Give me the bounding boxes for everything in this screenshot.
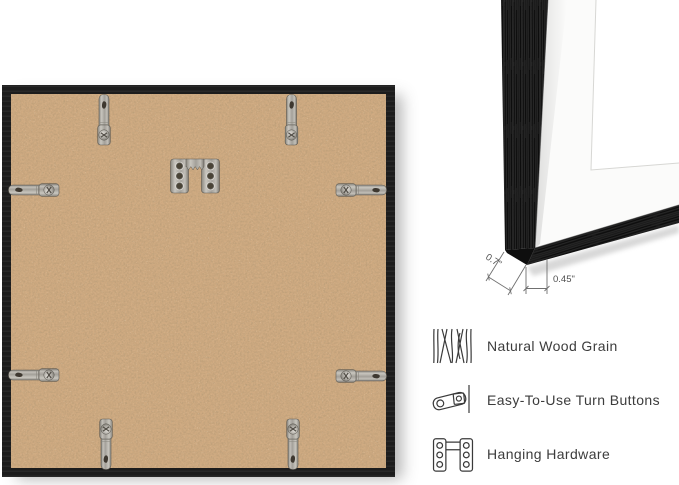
frame-corner-view: 0.7" 0.45"	[455, 0, 679, 300]
dimension-label-depth: 0.7"	[483, 252, 503, 270]
feature-hanging-hardware: Hanging Hardware	[431, 436, 679, 472]
feature-list: Natural Wood Grain Easy-To-Use Turn Butt…	[431, 328, 679, 472]
turn-button-icon	[431, 382, 475, 418]
turn-button	[336, 370, 387, 383]
feature-turn-buttons: Easy-To-Use Turn Buttons	[431, 382, 679, 418]
sawtooth-hanger	[171, 159, 220, 193]
dimension-label-width: 0.45"	[553, 274, 575, 285]
feature-label: Easy-To-Use Turn Buttons	[487, 392, 660, 408]
hanging-hardware-icon	[431, 436, 475, 472]
hardware-layer	[2, 85, 395, 477]
turn-button	[100, 419, 113, 470]
feature-natural-wood-grain: Natural Wood Grain	[431, 328, 679, 364]
feature-label: Hanging Hardware	[487, 446, 610, 462]
turn-button	[336, 184, 387, 197]
feature-label: Natural Wood Grain	[487, 338, 618, 354]
turn-button	[9, 184, 60, 197]
wood-grain-icon	[431, 328, 475, 364]
turn-button	[9, 369, 60, 382]
art-area	[591, 0, 679, 170]
product-image: 0.7" 0.45" Natural Wood Grain	[0, 0, 679, 485]
frame-back-view	[2, 85, 395, 477]
turn-button	[285, 95, 298, 146]
turn-button	[287, 419, 300, 470]
turn-button	[98, 95, 111, 146]
